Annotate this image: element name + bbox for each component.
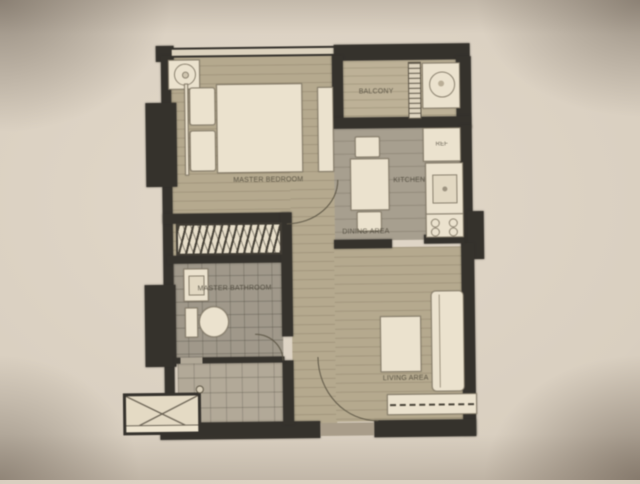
toilet-bowl bbox=[199, 306, 229, 337]
air-conditioner-fan bbox=[174, 64, 196, 86]
entrance-threshold bbox=[320, 422, 374, 436]
drying-rack bbox=[408, 62, 422, 119]
kitchen-sink bbox=[432, 174, 457, 203]
living-area-label: LIVING AREA bbox=[380, 375, 432, 384]
floorplan-drawing: MASTER BEDROOM BALCONY REF KITCHEN bbox=[0, 0, 640, 484]
dining-table bbox=[350, 158, 390, 210]
window-wall-top bbox=[172, 46, 336, 58]
tv-console bbox=[387, 393, 477, 415]
floorplan-photo: MASTER BEDROOM BALCONY REF KITCHEN bbox=[0, 0, 640, 480]
dining-area-label: DINING AREA bbox=[338, 228, 394, 237]
bedroom-cabinet bbox=[317, 87, 334, 172]
column-left-lower bbox=[145, 285, 177, 367]
washing-machine-drum bbox=[429, 71, 455, 97]
ac-ledge-sill bbox=[126, 425, 198, 433]
master-bathroom-label: MASTER BATHROOM bbox=[189, 284, 281, 293]
wall-balcony-top bbox=[334, 43, 470, 61]
wall-bottom-right bbox=[374, 419, 476, 437]
wall-bathroom-hall-upper bbox=[281, 212, 294, 336]
refrigerator-label: REF bbox=[424, 140, 460, 148]
wall-closet-bathroom bbox=[167, 254, 289, 263]
wardrobe bbox=[176, 222, 282, 255]
kitchen-counter bbox=[425, 162, 464, 214]
bed-mattress bbox=[216, 83, 303, 173]
column-left-upper bbox=[145, 103, 177, 187]
pillow bbox=[190, 130, 216, 171]
coffee-table bbox=[380, 316, 422, 372]
tv-console-dashed-line bbox=[390, 403, 474, 406]
dining-chair bbox=[355, 136, 380, 157]
refrigerator: REF bbox=[423, 127, 461, 161]
shower-door-handle bbox=[196, 385, 204, 393]
wall-dining-living bbox=[334, 239, 392, 249]
wall-bathroom-hall-lower bbox=[282, 360, 294, 424]
sofa bbox=[431, 290, 465, 391]
toilet-tank bbox=[185, 307, 198, 337]
shower-door-opening bbox=[180, 357, 202, 363]
stove bbox=[426, 213, 464, 237]
ac-ledge bbox=[123, 392, 202, 435]
wall-bedroom-balcony bbox=[332, 56, 344, 124]
pillow bbox=[189, 87, 215, 125]
washing-machine bbox=[422, 62, 461, 108]
balcony-label: BALCONY bbox=[348, 88, 404, 97]
kitchen-label: KITCHEN bbox=[385, 177, 433, 186]
